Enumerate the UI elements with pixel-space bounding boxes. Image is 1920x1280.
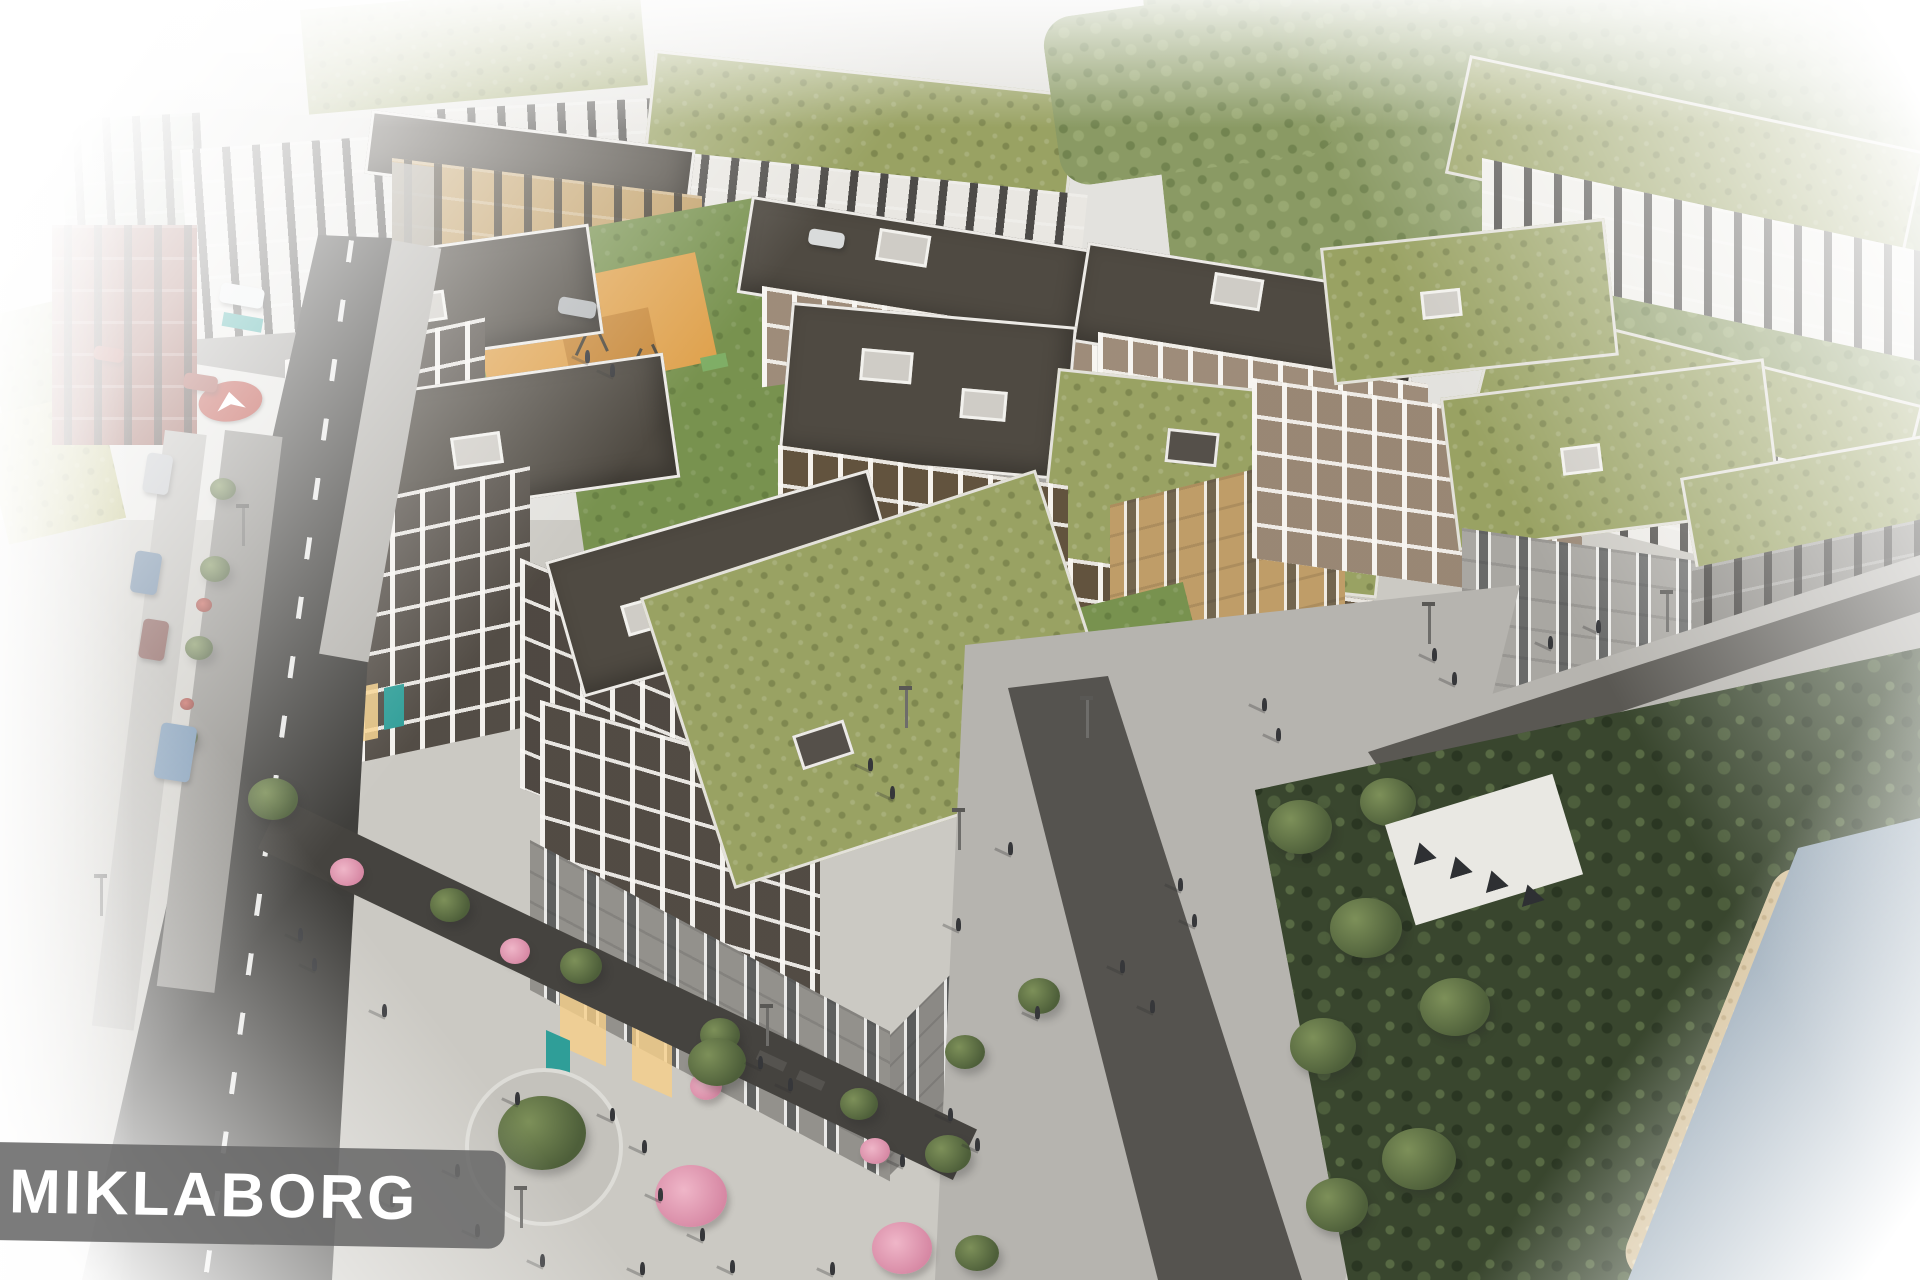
plaza-tree-2 [688, 1038, 746, 1086]
person-26 [1548, 636, 1553, 649]
architectural-rendering: MIKLABORG [0, 0, 1920, 1280]
person-10 [540, 1254, 545, 1267]
person-22 [1262, 698, 1267, 711]
plaza-tree-4 [945, 1035, 985, 1069]
person-29 [890, 786, 895, 799]
person-8 [700, 1228, 705, 1241]
person-7 [658, 1188, 663, 1201]
person-15 [1035, 1006, 1040, 1019]
person-1 [298, 928, 303, 941]
lamp-1 [242, 508, 245, 546]
lamp-8 [905, 690, 908, 728]
band-plant-4 [840, 1088, 878, 1120]
slope-tree-6 [1420, 978, 1490, 1036]
plaza-tree-5 [925, 1135, 971, 1173]
person-2 [312, 958, 317, 971]
plaza-tree-6 [955, 1235, 999, 1271]
lamp-4 [958, 812, 961, 850]
bush-parking-2 [185, 636, 213, 660]
lamp-7 [1086, 700, 1089, 738]
bush-parking-1 [200, 556, 230, 582]
person-27 [1596, 620, 1601, 633]
miklaborg-logo-text: MIKLABORG [9, 1156, 419, 1234]
person-14 [975, 1138, 980, 1151]
person-21 [1192, 914, 1197, 927]
lamp-9 [520, 1190, 523, 1228]
person-25 [1452, 672, 1457, 685]
palm-tree [498, 1096, 586, 1170]
person-39 [1120, 960, 1125, 973]
person-28 [868, 758, 873, 771]
flower-2 [500, 938, 530, 964]
lamp-3 [766, 1008, 769, 1046]
central-roof-skylight-2 [959, 388, 1007, 422]
person-3 [382, 1004, 387, 1017]
person-18 [730, 1260, 735, 1273]
slope-tree-3 [1290, 1018, 1356, 1074]
person-31 [956, 918, 961, 931]
person-4 [515, 1092, 520, 1105]
person-23 [1276, 728, 1281, 741]
bush-red-1 [196, 598, 212, 612]
building-bg-red [52, 225, 197, 445]
bush-parking-4 [210, 478, 236, 500]
lamp-5 [1428, 606, 1431, 644]
miklaborg-watermark: MIKLABORG [0, 1142, 506, 1249]
person-11 [758, 1056, 763, 1069]
person-19 [640, 1262, 645, 1275]
lamp-2 [100, 878, 103, 916]
right-roof-skylight-2 [1560, 443, 1603, 476]
person-33 [610, 364, 615, 377]
bush-red-2 [180, 698, 194, 710]
person-17 [830, 1262, 835, 1275]
person-6 [642, 1140, 647, 1153]
flower-4 [860, 1138, 890, 1164]
slope-tree-4 [1382, 1128, 1456, 1190]
lamp-6 [1666, 594, 1669, 632]
right-roof-skylight-1 [1420, 288, 1463, 320]
plaza-tree-1 [248, 778, 298, 820]
person-24 [1432, 648, 1437, 661]
person-20 [1178, 878, 1183, 891]
central-roof-skylight-1 [859, 348, 914, 384]
slope-tree-5 [1306, 1178, 1368, 1232]
person-32 [585, 350, 590, 363]
person-12 [788, 1078, 793, 1091]
person-16 [900, 1154, 905, 1167]
person-30 [1008, 842, 1013, 855]
flower-tree-1 [655, 1165, 727, 1227]
shop-door-teal-left [384, 684, 404, 730]
flower-tree-2 [872, 1222, 932, 1274]
band-plant-2 [560, 948, 602, 984]
slope-tree-2 [1330, 898, 1402, 958]
person-40 [1150, 1000, 1155, 1013]
central-green-skylight [1164, 428, 1219, 467]
person-13 [948, 1108, 953, 1121]
person-5 [610, 1108, 615, 1121]
slope-tree-1 [1268, 800, 1332, 854]
flower-1 [330, 858, 364, 886]
band-plant-1 [430, 888, 470, 922]
